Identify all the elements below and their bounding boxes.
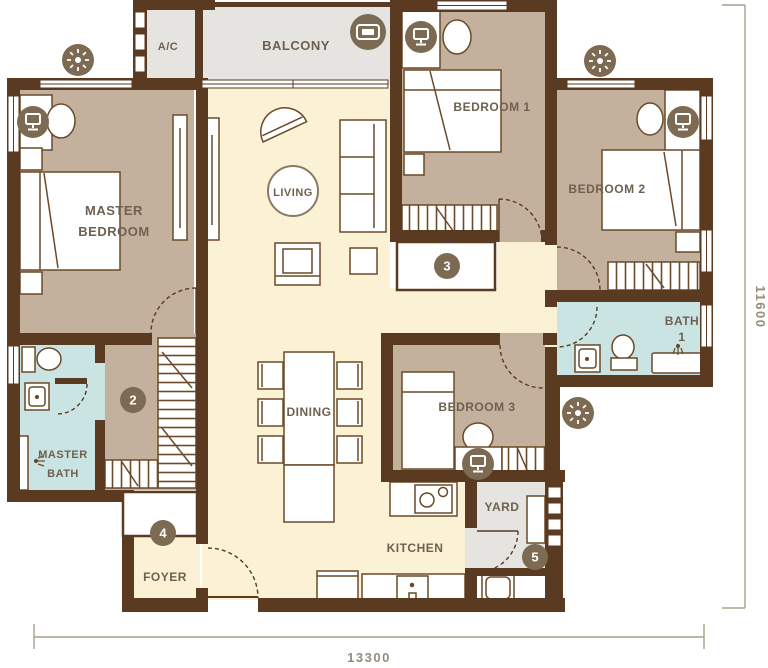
- label-kitchen: KITCHEN: [387, 541, 444, 555]
- marker-4: 4: [150, 520, 176, 546]
- master-bath-threshold: [95, 360, 105, 420]
- chair: [443, 20, 471, 54]
- monitor-icon: [462, 448, 494, 480]
- ceiling-light-icon: [584, 45, 616, 77]
- label-master-bath-1: MASTER: [38, 449, 87, 461]
- nightstand: [676, 232, 700, 252]
- ac-louver: [135, 12, 145, 28]
- ceiling-light-icon: [562, 397, 594, 429]
- bedroom3-threshold: [500, 333, 543, 345]
- marker-5-label: 5: [531, 550, 538, 565]
- label-bath1-2: 1: [678, 330, 685, 344]
- ac-louver: [135, 34, 145, 50]
- sofa: [340, 120, 386, 232]
- yard-vent: [548, 535, 561, 546]
- stove-burner: [439, 488, 448, 497]
- monitor-icon: [17, 106, 49, 138]
- dimension-bottom: 13300: [347, 650, 391, 665]
- marker-3: 3: [434, 253, 460, 279]
- wardrobe-walkin-tall: [158, 338, 196, 488]
- label-master-bath-2: BATH: [47, 468, 79, 480]
- monitor-icon: [667, 106, 699, 138]
- yard-vent: [548, 519, 561, 530]
- yard-threshold: [465, 528, 477, 568]
- marker-5: 5: [522, 544, 548, 570]
- stove-burner: [420, 493, 434, 507]
- label-yard: YARD: [485, 500, 520, 514]
- sink-drain: [586, 358, 589, 361]
- monitor-icon: [405, 21, 437, 53]
- ac-louver: [135, 56, 145, 72]
- marker-2: 2: [120, 387, 146, 413]
- toilet-bowl: [612, 335, 634, 359]
- shower-tray: [652, 353, 704, 373]
- marker-2-label: 2: [129, 393, 136, 408]
- wardrobe-bedroom2: [608, 262, 700, 290]
- balcony-bench-icon: [350, 14, 386, 50]
- sink-drain: [36, 396, 39, 399]
- label-bedroom2: BEDROOM 2: [568, 182, 645, 196]
- floor-plan-svg: 2 3 4 5 BALCONY A/C MASTER BEDROOM LIVIN…: [0, 0, 768, 668]
- nightstand: [404, 154, 424, 175]
- yard-cabinet: [527, 496, 545, 543]
- floor-plan: 2 3 4 5 BALCONY A/C MASTER BEDROOM LIVIN…: [0, 0, 768, 668]
- floors: [18, 5, 700, 600]
- sink-drain: [411, 584, 414, 587]
- label-living: LIVING: [273, 187, 313, 199]
- toilet-cistern: [611, 358, 637, 370]
- label-bedroom1: BEDROOM 1: [453, 100, 530, 114]
- kitchen-island: [284, 465, 334, 522]
- label-balcony: BALCONY: [262, 38, 330, 53]
- label-master-bedroom-2: BEDROOM: [78, 224, 149, 239]
- label-master-bedroom-1: MASTER: [85, 203, 143, 218]
- ceiling-light-icon: [62, 44, 94, 76]
- marker-3-label: 3: [443, 259, 450, 274]
- yard-vent: [548, 503, 561, 514]
- chair: [637, 103, 663, 135]
- bed-master: [20, 172, 120, 270]
- bed-bedroom3: [402, 372, 454, 469]
- label-ac: A/C: [158, 41, 178, 53]
- lounge-chair-seat: [283, 249, 312, 273]
- marker-4-label: 4: [159, 526, 167, 541]
- chair: [47, 104, 75, 138]
- label-bath1-1: BATH: [665, 314, 699, 328]
- toilet-bowl: [37, 348, 61, 370]
- entrance-threshold: [208, 560, 258, 600]
- label-foyer: FOYER: [143, 570, 187, 584]
- label-dining: DINING: [287, 405, 332, 419]
- nightstand: [20, 148, 42, 170]
- corridor-floor-upper: [497, 240, 547, 295]
- nightstand: [20, 272, 42, 294]
- yard-vent: [548, 487, 561, 498]
- washing-machine-drum: [486, 577, 510, 599]
- wardrobe-walkin-low: [105, 460, 158, 488]
- bedroom2-threshold: [545, 245, 557, 290]
- side-table: [350, 248, 377, 274]
- bedroom1-threshold: [499, 230, 541, 242]
- label-bedroom3: BEDROOM 3: [438, 400, 515, 414]
- toilet-cistern: [22, 347, 35, 372]
- dimension-right: 11600: [753, 286, 768, 329]
